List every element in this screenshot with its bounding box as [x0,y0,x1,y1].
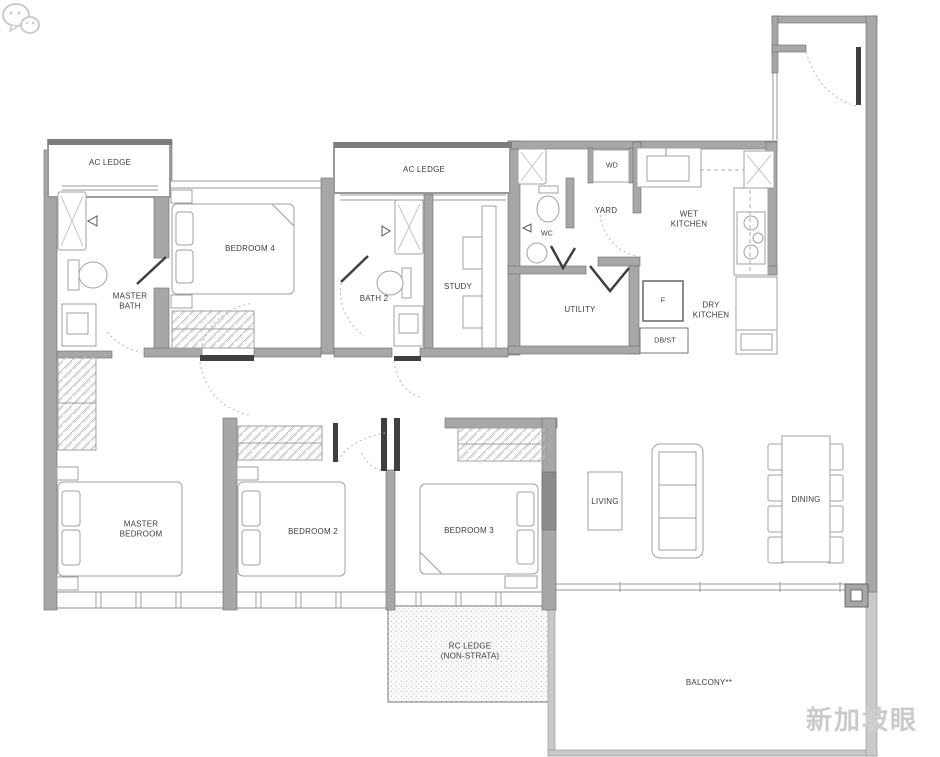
cooker-hob-icon [734,188,768,275]
room-label-living: LIVING [591,497,618,507]
corner-unit-icon [744,151,774,188]
chat-bubbles-logo-icon [0,0,42,40]
kitchen-sink-icon [637,148,701,187]
toilet-icon [68,260,107,290]
floor-plan: AC LEDGE AC LEDGE BEDROOM 4 MASTER BATH … [0,0,940,757]
wardrobe-icon [58,356,96,450]
room-label-bedroom-3: BEDROOM 3 [444,526,494,536]
room-label-yard: YARD [595,206,617,216]
entry-door-icon [856,47,861,105]
tap-icon [88,216,97,226]
room-label-wd: WD [606,161,618,170]
shower-icon [395,200,423,254]
vanity-sink-icon [394,306,423,346]
room-label-dining: DINING [791,495,820,505]
tap-icon [523,224,531,232]
room-label-study: STUDY [444,282,472,292]
room-label-bedroom-2: BEDROOM 2 [288,527,338,537]
tap-icon [382,226,390,236]
room-label-rc-ledge: RC LEDGE (NON-STRATA) [441,642,500,663]
living-window-band [556,582,866,592]
room-label-utility: UTILITY [564,305,595,315]
bifold-door-icon [590,266,629,291]
room-label-bath-2: BATH 2 [360,294,389,304]
room-label-dry-kitchen: DRY KITCHEN [693,301,730,322]
chair-icon [463,296,482,328]
room-label-bedroom-4: BEDROOM 4 [225,244,275,254]
watermark-text: 新加坡眼 [806,700,918,737]
room-label-wet-kitchen: WET KITCHEN [671,210,708,231]
toilet-icon [537,186,559,222]
study-desk-icon [463,206,496,348]
room-label-wc: WC [541,229,553,238]
sofa-icon [652,444,703,558]
room-label-balcony: BALCONY** [686,678,732,688]
balcony-column [845,584,868,607]
chair-icon [463,237,482,269]
wardrobe-icon [458,428,546,461]
bifold-door-icon [551,246,575,268]
room-label-master-bedroom: MASTER BEDROOM [120,520,163,541]
furniture [57,148,843,590]
shower-icon [58,192,86,250]
room-label-db-st: DB/ST [654,336,676,345]
dry-kitchen-counter [736,277,777,354]
shower-icon [518,149,546,184]
wardrobe-icon [172,311,254,348]
room-label-ac-ledge-2: AC LEDGE [403,165,445,175]
double-bed-icon [237,467,345,576]
room-label-master-bath: MASTER BATH [113,292,148,313]
basin-icon [527,243,547,263]
room-label-fridge: F [661,296,665,305]
wardrobe-icon [238,426,322,460]
room-label-ac-ledge-1: AC LEDGE [89,158,131,168]
vanity-sink-icon [62,304,96,346]
